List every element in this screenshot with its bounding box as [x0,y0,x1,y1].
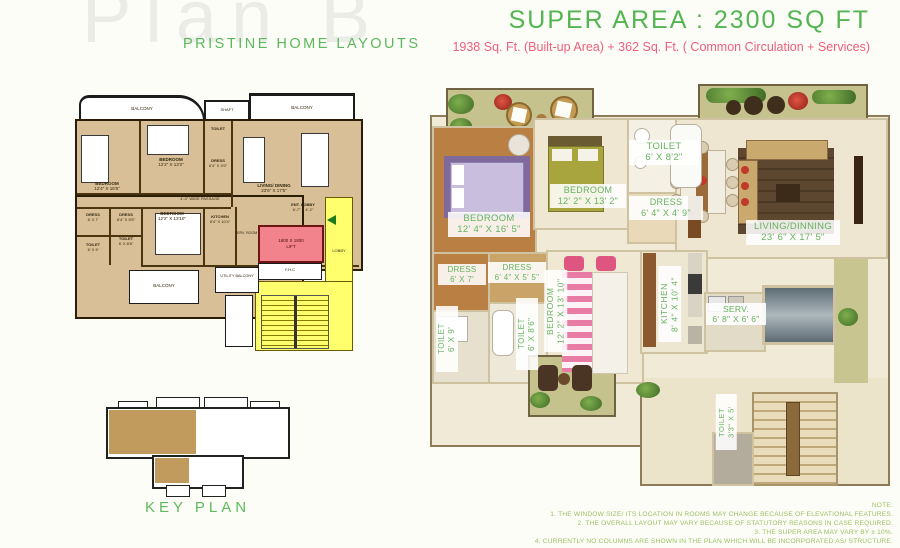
room-name: KITCHEN [659,269,670,339]
room-dims: 6' X 8'2" [632,152,696,163]
key-plan-caption: KEY PLAN [100,499,295,516]
area-breakdown: 1938 Sq. Ft. (Built-up Area) + 362 Sq. F… [452,40,870,54]
fire-hose-cabinet: F.H.C [258,263,322,280]
plant-icon [580,396,602,411]
room-dims: 6'4" X 4'9" [205,164,231,169]
room-dims: 12' 2" X 13' 2" [553,196,623,207]
bed [592,272,628,374]
wall [231,121,233,207]
plant-icon [838,308,858,326]
balcony-label: BALCONY [251,105,353,110]
stair-rail [786,402,800,476]
room-dims: 6' 4" X 5' 5" [491,273,543,283]
bed [81,135,109,183]
fridge-icon [688,326,702,344]
room-label: DRESS6' X 7' [79,213,107,222]
room-name: DRESS [491,263,543,273]
room-name: SERV. [709,304,763,314]
room-label: DRESS6'4" X 4'9" [205,159,231,168]
plant-icon [636,382,660,398]
chair-icon [538,365,558,391]
room-label: DRESS6'4" X 5'5" [112,213,140,222]
room-name: TOILET [632,141,696,152]
room-dims: 6' X 8'6" [527,301,537,367]
room-dims: 12'2" X 13'2" [145,162,197,167]
tv-unit [854,156,863,224]
table-icon [558,373,570,385]
room-dims: 12' 2" X 13' 10" [556,273,567,349]
room-label: TOILET [207,127,229,132]
dining-table [243,137,265,183]
room-name: BEDROOM [553,185,623,196]
key-plan: KEY PLAN [100,393,295,533]
room-dims: 6' X 9' [447,309,457,369]
room-dims: 12' 4" X 16' 5" [451,224,527,235]
room-dims: 6' X 8'6" [113,242,139,247]
planter-icon [726,100,741,115]
room-label: TOILET 3'3" X 5' [716,394,737,450]
room-label: TOILET6' X 9' [79,243,107,252]
utility-balcony: UTILITY BALCONY [215,267,259,293]
keyplan-block [166,485,190,497]
room-label: DRESS 6' X 7' [438,264,486,285]
wall [235,207,237,265]
note-line: 4. CURRENTLY NO COLUMNS ARE SHOWN IN THE… [513,537,893,546]
room-name: DRESS [441,265,483,275]
chair-icon [506,102,532,128]
room-dims: 12'2" X 13'10" [145,216,199,221]
room-name: TOILET [717,397,726,447]
wall [203,121,205,195]
room-label: KITCHEN 8' 4" X 10' 4" [658,266,681,342]
staircase [261,295,329,349]
pillow [452,165,464,185]
pillow [452,188,464,208]
wall [141,207,143,265]
coffee-table [776,184,800,202]
room-label: BEDROOM 12' 2" X 13' 2" [550,184,626,208]
room-label: BEDROOM12'2" X 13'2" [145,157,197,167]
headboard [548,136,602,146]
wall [77,207,231,209]
room-label: BEDROOM 12' 2" X 13' 10" [544,270,567,352]
cushion-icon [741,182,749,190]
room-label: LIVING/ DINING23'6" X 17'5" [241,183,307,193]
passage-label: 4'-0" WIDE PASSAGE [171,197,229,202]
room-dims: 6' X 7' [441,275,483,285]
keyplan-highlight [155,458,189,483]
note-title: NOTE: [513,501,893,510]
stove-icon [688,274,702,294]
lift-label: LIFT [286,244,295,249]
room-label: KITCHEN8'4" X 10'4" [206,215,234,224]
room-dims: 12'4" X 16'5" [81,186,133,191]
room-label: BEDROOM12'2" X 13'10" [145,211,199,221]
planter-icon [744,96,763,115]
notes: NOTE: 1. THE WINDOW SIZE/ ITS LOCATION I… [513,501,893,546]
room-dims: 6' 4" X 4' 9" [632,208,700,219]
balcony-label: BALCONY [81,106,203,111]
flower-icon [788,92,808,110]
wall [139,121,141,195]
note-line: 2. THE OVERALL LAYOUT MAY VARY BECAUSE O… [513,519,893,528]
wall [77,193,231,195]
room-dims: 6'4" X 5'5" [112,218,140,223]
lobby-label: LOBBY [326,249,352,254]
room-label: TOILET 6' X 8'6" [516,298,538,370]
note-line: 3. THE SUPER AREA MAY VARY BY ± 10%. [513,528,893,537]
room-label: TOILET 6' X 9' [436,306,458,372]
room-dims: 23'6" X 17'5" [241,188,307,193]
sofa [746,140,828,160]
balcony-bottom: BALCONY [129,270,199,304]
room-label: ENT. LOBBY6'-7" X 4'-2" [281,203,325,212]
room-dims: 6' X 7' [79,218,107,223]
chair-icon [508,134,530,156]
pillow [552,149,572,161]
cushion-icon [741,166,749,174]
chair-icon [572,365,592,391]
architectural-floor-plan: BALCONY SHAFT BALCONY 1800 X [75,85,391,363]
cushion-icon [741,198,749,206]
room-label: TOILET6' X 8'6" [113,237,139,246]
brand-title: PRISTINE HOME LAYOUTS [183,36,421,52]
room-name: DRESS [632,197,700,208]
armchair-icon [564,256,584,271]
balcony-label: BALCONY [130,283,198,288]
plant-icon [530,392,550,408]
glass-canopy [762,285,836,345]
service-toilet [225,295,253,347]
bed [147,125,189,155]
room-dims: 8' 4" X 10' 4" [670,269,681,339]
rendered-floor-plan: BEDROOM 12' 4" X 16' 5" BEDROOM 12' 2" X… [430,60,890,488]
plant-icon [812,90,856,104]
sofa [301,133,329,187]
room-label: DRESS 6' 4" X 4' 9" [629,196,703,220]
room-label: SERV. 6' 8" X 6' 6" [706,303,766,325]
page: Plan B PRISTINE HOME LAYOUTS SUPER AREA … [0,0,900,548]
room-dims: 6' X 9' [79,248,107,253]
bathtub [492,310,514,356]
pillow [578,149,598,161]
room-name: TOILET [437,309,447,369]
room-name: TOILET [207,127,229,132]
room-label: BEDROOM 12' 4" X 16' 5" [448,212,530,237]
utility-balcony-label: UTILITY BALCONY [216,274,258,278]
lift: 1800 X 1800 LIFT [258,225,324,263]
room-name: TOILET [517,301,527,367]
armchair-icon [596,256,616,271]
room-label: LIVING/DINNING 23' 6" X 17' 5" [746,220,840,245]
keyplan-highlight [109,410,196,454]
shaft-label: SHAFT [206,108,248,113]
note-line: 1. THE WINDOW SIZE/ ITS LOCATION IN ROOM… [513,510,893,519]
lift-size-label: 1800 X 1800 [278,238,304,243]
room-dims: 6' 8" X 6' 6" [709,314,763,324]
planter-icon [767,96,785,114]
entrance-arrow-icon [327,215,336,225]
room-label: TOILET 6' X 8'2" [629,140,699,165]
room-dims: 3'3" X 5' [726,397,735,447]
room-name: BEDROOM [545,273,556,349]
room-label: BEDROOM12'4" X 16'5" [81,181,133,191]
room-label: DRESS 6' 4" X 5' 5" [488,262,546,283]
room-dims: 8'4" X 10'4" [206,220,234,225]
fhc-label: F.H.C [259,268,321,273]
room-label: SERV. ROOM [233,231,259,235]
super-area-title: SUPER AREA : 2300 SQ FT [509,6,870,35]
kitchen-counter [643,253,656,347]
room-dims: 23' 6" X 17' 5" [749,232,837,243]
room-name: LIVING/DINNING [749,221,837,232]
plant-icon [448,94,474,114]
room-dims: 6'-7" X 4'-2" [281,208,325,213]
keyplan-block [202,485,226,497]
room-name: BEDROOM [451,213,527,224]
wall [203,207,205,265]
